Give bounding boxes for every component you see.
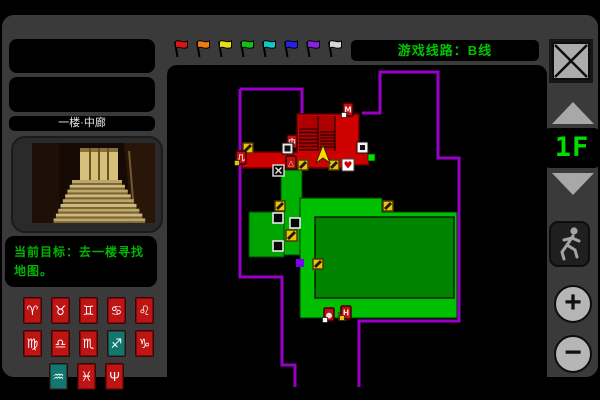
- map-panel[interactable]: 中♥几△M●H: [167, 65, 547, 387]
- flag-purple-icon: [303, 38, 324, 59]
- floor-map-canvas[interactable]: 中♥几△M●H: [167, 65, 547, 387]
- flag-row: [171, 38, 347, 60]
- run-mode-button[interactable]: [549, 221, 590, 267]
- flag-cyan-icon: [259, 38, 280, 59]
- floor-indicator: 1F: [544, 128, 600, 168]
- map-marker-info_white: [282, 143, 293, 154]
- map-marker-black_door: [290, 218, 300, 228]
- sidebar-empty-slot-1: [9, 39, 155, 73]
- running-person-icon: [551, 223, 588, 265]
- scene-photo-stairs: [32, 143, 155, 223]
- map-marker-badge: △: [286, 156, 296, 169]
- zodiac-button[interactable]: ♎: [51, 330, 70, 357]
- zodiac-row-1: ♈♉♊♋♌: [23, 297, 154, 324]
- map-marker-hazard: [275, 201, 285, 211]
- floor-up-button[interactable]: [550, 100, 596, 126]
- close-icon: [554, 44, 588, 78]
- zodiac-button[interactable]: ♍: [23, 330, 42, 357]
- zodiac-button[interactable]: ♒: [49, 363, 68, 390]
- main-frame: 一楼·中廊 当前目标：去一楼寻找地图。 ♈♉♊♋♌♍♎♏♐♑♒♓Ψ 游戏线路：B…: [2, 15, 598, 377]
- game-screen: 一楼·中廊 当前目标：去一楼寻找地图。 ♈♉♊♋♌♍♎♏♐♑♒♓Ψ 游戏线路：B…: [0, 0, 600, 400]
- map-marker-xbox: [273, 165, 284, 176]
- map-marker-door_purple: [296, 259, 304, 267]
- close-map-button[interactable]: [552, 42, 590, 80]
- zodiac-button[interactable]: ♌: [135, 297, 154, 324]
- zodiac-row-3: ♒♓Ψ: [49, 363, 154, 390]
- zodiac-button[interactable]: ♓: [77, 363, 96, 390]
- map-marker-black_door: [273, 241, 283, 251]
- sidebar-empty-slot-2: [9, 77, 155, 112]
- flag-orange-icon: [193, 38, 214, 59]
- map-marker-badge: H: [340, 306, 352, 321]
- flag-blue-icon: [281, 38, 302, 59]
- flag-red-icon: [171, 38, 192, 59]
- svg-text:♥: ♥: [344, 161, 353, 172]
- zodiac-keypad: ♈♉♊♋♌♍♎♏♐♑♒♓Ψ: [23, 297, 154, 396]
- location-label: 一楼·中廊: [9, 116, 155, 131]
- map-marker-badge: 几: [235, 151, 247, 166]
- stairs-photo-art: [32, 143, 155, 223]
- green-room-inner: [315, 217, 454, 298]
- chevron-up-icon: [552, 102, 594, 124]
- current-goal-text: 当前目标：去一楼寻找地图。: [5, 236, 157, 287]
- zoom-out-button[interactable]: −: [554, 335, 592, 373]
- zodiac-button[interactable]: ♐: [107, 330, 126, 357]
- zodiac-button[interactable]: ♈: [23, 297, 42, 324]
- map-marker-black_door: [273, 213, 283, 223]
- zodiac-button[interactable]: Ψ: [105, 363, 124, 390]
- svg-text:△: △: [288, 158, 294, 167]
- flag-yellow-icon: [215, 38, 236, 59]
- map-marker-hazard: [383, 201, 393, 211]
- zodiac-button[interactable]: ♊: [79, 297, 98, 324]
- map-marker-hazard: [329, 160, 339, 170]
- zodiac-button[interactable]: ♋: [107, 297, 126, 324]
- zoom-in-button[interactable]: +: [554, 285, 592, 323]
- map-marker-white_door: [357, 142, 368, 153]
- flag-green-icon: [237, 38, 258, 59]
- floor-down-button[interactable]: [550, 171, 596, 197]
- zodiac-button[interactable]: ♏: [79, 330, 98, 357]
- flag-white-icon: [325, 38, 346, 59]
- map-marker-hazard: [286, 230, 297, 241]
- zodiac-button[interactable]: ♉: [51, 297, 70, 324]
- zodiac-button[interactable]: ♑: [135, 330, 154, 357]
- map-marker-heart: ♥: [342, 159, 354, 172]
- chevron-down-icon: [552, 173, 594, 195]
- route-label: 游戏线路：B线: [351, 40, 539, 61]
- map-marker-badge: ●: [323, 308, 335, 323]
- map-marker-badge: M: [342, 103, 354, 118]
- map-marker-door_green: [368, 154, 375, 161]
- zodiac-row-2: ♍♎♏♐♑: [23, 330, 154, 357]
- stairwell-area: [299, 116, 335, 151]
- map-marker-hazard: [298, 160, 308, 170]
- map-marker-hazard: [313, 259, 323, 269]
